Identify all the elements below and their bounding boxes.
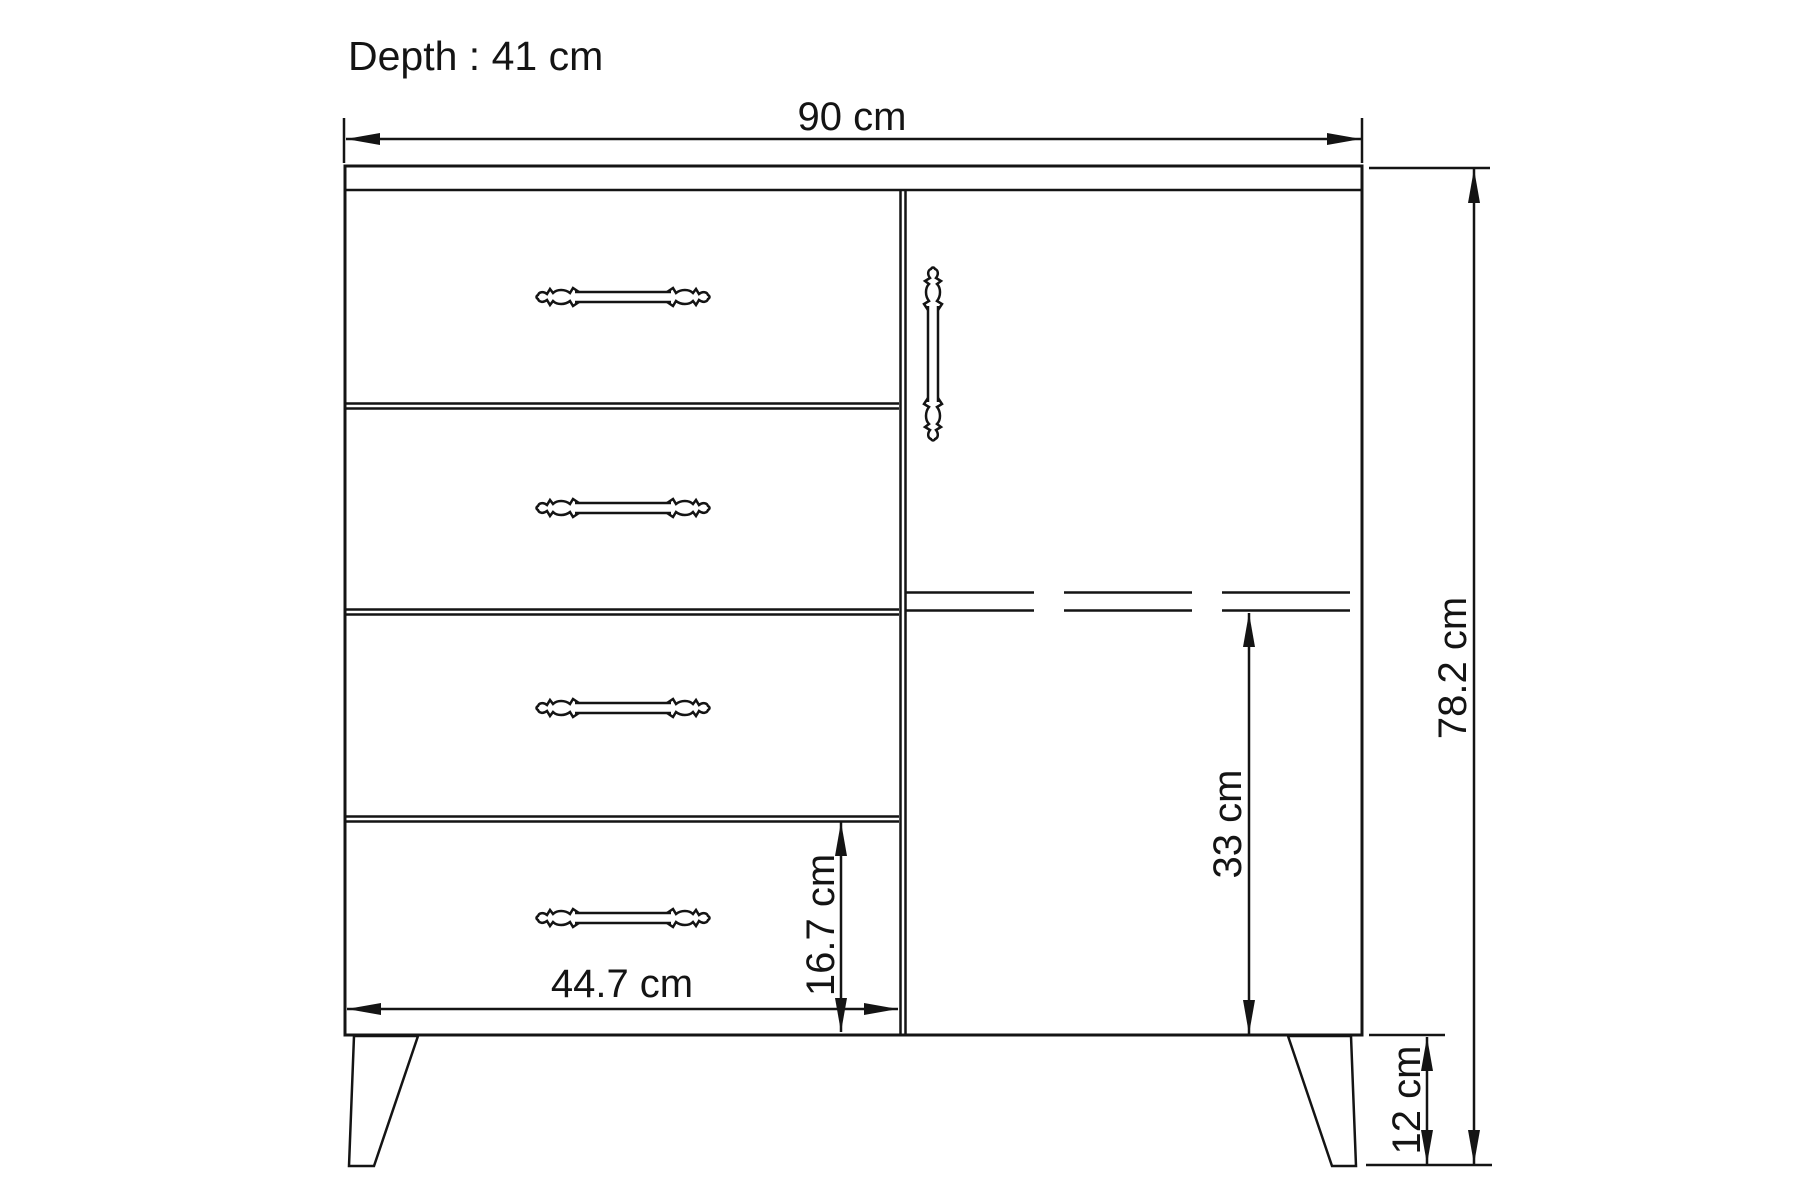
width-dimension-label: 90 cm <box>798 95 907 139</box>
arrowhead-left <box>346 133 380 145</box>
drawer-height-dimension-label: 16.7 cm <box>799 854 843 996</box>
arrowhead-right <box>1327 133 1361 145</box>
leg-height-dimension: 12 cm <box>1369 1035 1445 1164</box>
technical-drawing-canvas: Depth : 41 cm 90 cm 78.2 cm 33 cm 16.7 c… <box>0 0 1800 1200</box>
cabinet-body <box>345 166 1362 1166</box>
right-leg <box>1288 1036 1356 1166</box>
height-dimension-label: 78.2 cm <box>1431 597 1475 739</box>
width-dimension: 90 cm <box>344 95 1362 163</box>
arrowhead-down <box>1468 1130 1480 1164</box>
arrowhead-up <box>1468 169 1480 203</box>
door-opening-dimension-label: 33 cm <box>1206 770 1250 879</box>
drawer-width-dimension-label: 44.7 cm <box>551 962 693 1006</box>
leg-height-dimension-label: 12 cm <box>1385 1046 1429 1155</box>
left-leg <box>349 1036 418 1166</box>
height-dimension: 78.2 cm <box>1366 168 1492 1165</box>
depth-dimension-label: Depth : 41 cm <box>348 33 603 79</box>
cabinet-dimension-diagram: Depth : 41 cm 90 cm 78.2 cm 33 cm 16.7 c… <box>0 0 1800 1200</box>
cabinet-outline <box>345 166 1362 1035</box>
